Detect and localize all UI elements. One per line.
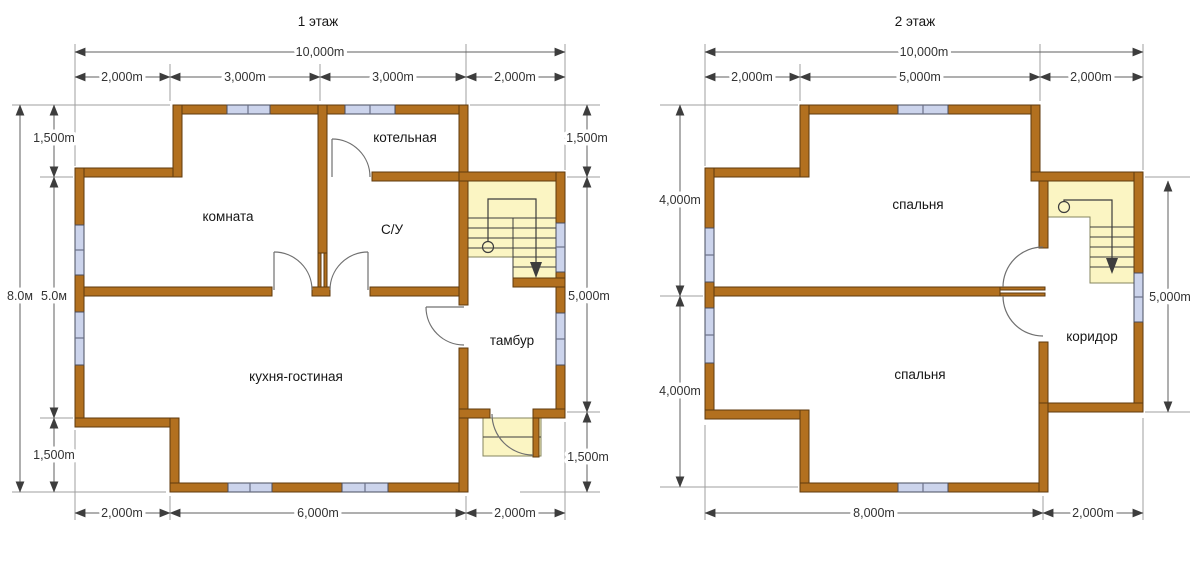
room-label-bedroom-bottom: спальня [894, 367, 945, 382]
floor2-dim-bottom-1: 8,000m [853, 506, 895, 520]
window [705, 228, 714, 282]
bedroom-top-door [1003, 247, 1043, 287]
window [556, 223, 565, 272]
floor1-plan: 1 этаж 10,000m [7, 14, 610, 520]
floor1-porch-door-leaf [533, 414, 539, 457]
window [342, 483, 388, 492]
window [75, 225, 84, 275]
room-label-komnata: комната [202, 209, 254, 224]
floor1-dim-left-total: 8.0м [7, 289, 33, 303]
window [228, 483, 272, 492]
floor1-staircase [466, 181, 556, 278]
floor-plan-drawing: 1 этаж 10,000m [0, 0, 1200, 565]
floor1-dim-bottom-2: 6,000m [297, 506, 339, 520]
floor1-dim-total-width: 10,000m [296, 45, 345, 59]
floor2-dim-right: 5,000m [1149, 290, 1191, 304]
floor2-dim-left-1: 4,000m [659, 193, 701, 207]
room-label-corridor: коридор [1066, 329, 1118, 344]
floor2-walls [705, 105, 1143, 492]
bathroom-door [330, 252, 368, 290]
room-door [274, 252, 312, 290]
floor1-dim-left-3: 1,500m [33, 448, 75, 462]
floor2-plan: 2 этаж 10,000m 2,000m 5,000m 2,000m [659, 14, 1191, 520]
floor1-dim-right-3: 1,500m [567, 450, 609, 464]
floor2-dim-left-2: 4,000m [659, 384, 701, 398]
floor2-dim-total-width: 10,000m [900, 45, 949, 59]
vestibule-door [426, 307, 464, 345]
floor2-dim-top-1: 2,000m [731, 70, 773, 84]
floor2-staircase [1048, 181, 1134, 283]
floor1-dim-right-1: 1,500m [566, 131, 608, 145]
floor2-dim-top-3: 2,000m [1070, 70, 1112, 84]
floor1-dim-top-1: 2,000m [101, 70, 143, 84]
room-label-su: С/У [381, 222, 404, 237]
window [898, 105, 948, 114]
window [75, 312, 84, 365]
floor1-dim-left-1: 1,500m [33, 131, 75, 145]
window [705, 308, 714, 363]
room-label-kotelnaya: котельная [373, 130, 437, 145]
window [345, 105, 395, 114]
floor2-dim-bottom-2: 2,000m [1072, 506, 1114, 520]
window [1134, 273, 1143, 322]
floor1-dim-left-2: 5.0м [41, 289, 67, 303]
bedroom-bottom-door [1003, 296, 1043, 336]
floor2-doors [1003, 247, 1043, 336]
boiler-room-door [332, 139, 370, 177]
window [556, 313, 565, 365]
room-label-bedroom-top: спальня [892, 197, 943, 212]
floor1-title: 1 этаж [298, 14, 338, 29]
floor2-windows [705, 105, 1143, 492]
floor1-porch [483, 414, 541, 457]
floor1-dim-bottom-1: 2,000m [101, 506, 143, 520]
floor-plan-page: 1 этаж 10,000m [0, 0, 1200, 565]
floor2-dim-top-2: 5,000m [899, 70, 941, 84]
floor1-doors [274, 139, 464, 345]
window [898, 483, 948, 492]
floor1-dim-top-2: 3,000m [224, 70, 266, 84]
window [227, 105, 270, 114]
floor1-dim-right-2: 5,000m [568, 289, 610, 303]
floor1-dim-bottom-3: 2,000m [494, 506, 536, 520]
room-label-kitchen-living: кухня-гостиная [249, 369, 343, 384]
floor1-dim-top-3: 3,000m [372, 70, 414, 84]
floor1-dim-top-4: 2,000m [494, 70, 536, 84]
room-label-tambur: тамбур [490, 333, 534, 348]
floor2-title: 2 этаж [895, 14, 935, 29]
